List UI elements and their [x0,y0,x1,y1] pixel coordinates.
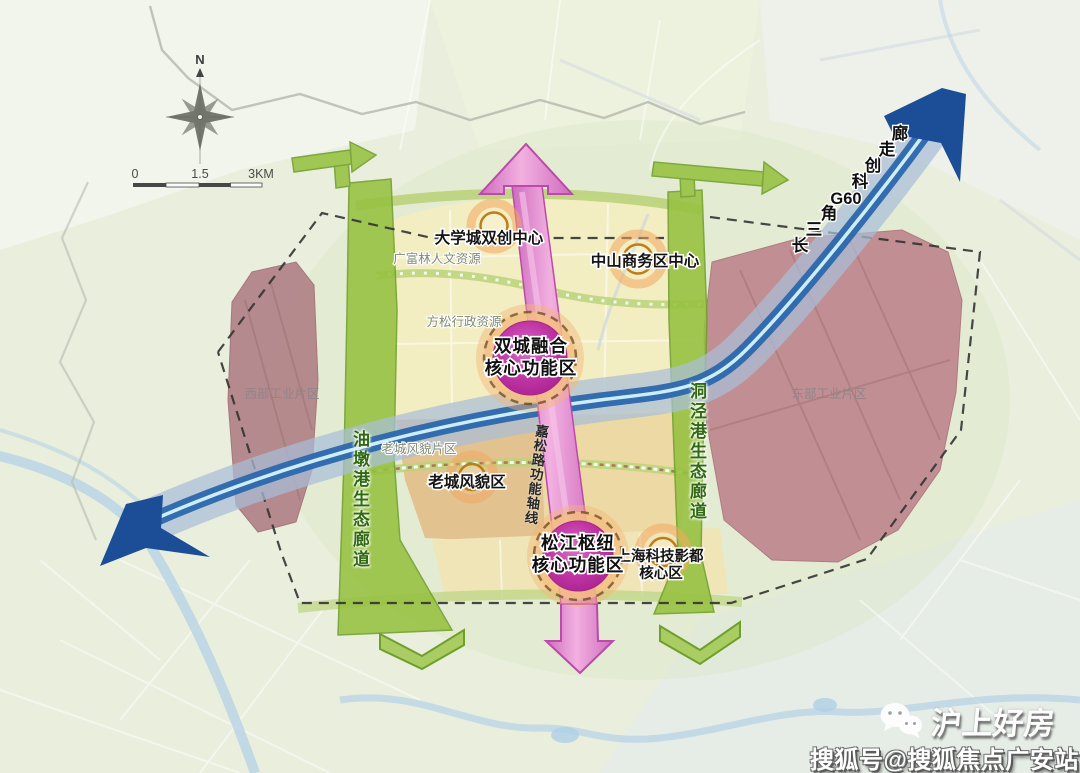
label-west-industrial: 西部工业片区 [244,386,319,401]
label-east-industrial: 东部工业片区 [791,386,866,401]
label-oldtown-area: 老城风貌片区 [381,441,456,456]
label-west-eco-corridor: 油墩港生态廊道 [347,430,372,570]
label-hub-core-line1: 松江枢纽 [541,533,615,553]
g60-char: 三 [806,221,823,239]
g60-char: 廊 [892,123,909,143]
wechat-icon [878,700,924,742]
scale-mid: 1.5 [191,167,208,181]
label-film-center-line2: 核心区 [639,564,683,582]
label-oldtown-center: 老城风貌区 [427,472,506,491]
map-canvas: 大学城双创中心 中山商务区中心 老城风貌区 上海科技影都 核心区 双城融合 核心… [0,0,1080,773]
watermark-brand: 沪上好房 [929,698,1057,743]
scale-end: 3KM [248,167,274,181]
pond [813,698,837,712]
watermark-account: 搜狐号@搜狐焦点广安站 [810,740,1079,773]
label-twin-core-line2: 核心功能区 [485,358,578,378]
watermark-brand-row: 沪上好房 [878,698,1055,743]
label-east-eco-corridor: 洞泾港生态廊道 [684,382,709,522]
scale-zero: 0 [132,167,139,181]
label-zhongshan-center: 中山商务区中心 [591,251,700,270]
planning-map: 大学城双创中心 中山商务区中心 老城风貌区 上海科技影都 核心区 双城融合 核心… [0,0,1080,773]
label-twin-core-line1: 双城融合 [494,336,568,356]
g60-char: G60 [830,190,861,208]
compass-north-label: N [195,52,204,67]
label-hub-core-line2: 核心功能区 [532,555,625,575]
label-guangfulin-resource: 广富林人文资源 [393,251,481,266]
pond [551,727,579,743]
label-university-center: 大学城双创中心 [435,228,544,247]
label-fangsong-resource: 方松行政资源 [426,314,502,329]
label-film-center-line1: 上海科技影都 [617,547,704,565]
